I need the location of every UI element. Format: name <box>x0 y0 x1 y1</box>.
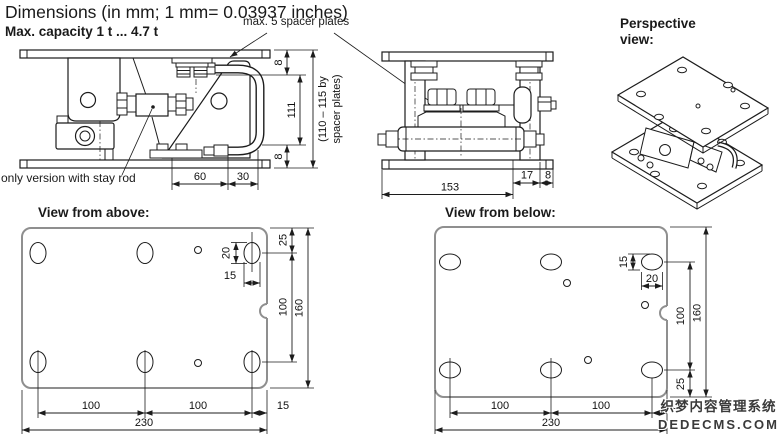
dim-plate-top: 8 <box>273 59 285 65</box>
watermark-site-text: DEDECMS.COM <box>658 416 779 434</box>
technical-drawing: 8 8 111 (110 – 115 by spacer plates) 60 … <box>0 0 784 442</box>
dim-230: 230 <box>135 417 153 429</box>
dim-plate-bottom: 8 <box>273 153 285 159</box>
dim-60: 60 <box>194 171 206 183</box>
front-view-drawing <box>20 50 270 168</box>
spacer-plates-callout: max. 5 spacer plates <box>243 16 349 28</box>
dim-17: 17 <box>521 170 533 182</box>
dim-230: 230 <box>542 417 560 429</box>
height-range-note-1: (110 – 115 by <box>317 76 329 142</box>
top-view-drawing <box>22 228 270 388</box>
view-from-below-label: View from below: <box>445 205 556 220</box>
dim-15-slot: 15 <box>618 256 630 268</box>
dim-30: 30 <box>237 171 249 183</box>
dim-100-vert: 100 <box>278 298 290 316</box>
dim-100-b: 100 <box>189 400 207 412</box>
bottom-view-drawing <box>435 227 670 397</box>
dim-20-slot: 20 <box>646 273 658 285</box>
dim-25-top: 25 <box>278 234 290 246</box>
dim-160: 160 <box>692 304 704 322</box>
height-range-note-2: spacer plates) <box>331 74 343 143</box>
end-view-drawing <box>378 52 556 169</box>
dim-15-slot: 15 <box>224 270 236 282</box>
perspective-view-drawing <box>612 57 768 209</box>
capacity-subtitle: Max. capacity 1 t ... 4.7 t <box>5 24 158 39</box>
dim-100-a: 100 <box>82 400 100 412</box>
watermark: 织梦内容管理系统 DEDECMS.COM <box>658 398 779 434</box>
dim-100-b: 100 <box>592 400 610 412</box>
dim-20-slot: 20 <box>221 247 233 259</box>
leader-dot <box>151 105 155 109</box>
view-from-above-label: View from above: <box>38 205 150 220</box>
dim-25-bottom: 25 <box>675 378 687 390</box>
dim-15-edge: 15 <box>277 400 289 412</box>
dim-100-a: 100 <box>491 400 509 412</box>
perspective-view-label: Perspective view: <box>620 16 715 48</box>
dim-8: 8 <box>545 170 551 182</box>
dim-160: 160 <box>294 299 306 317</box>
stay-rod-note: only version with stay rod <box>1 171 136 185</box>
dim-153: 153 <box>441 182 459 194</box>
watermark-chinese-text: 织梦内容管理系统 <box>658 398 779 416</box>
dim-height-111: 111 <box>286 102 298 119</box>
datasheet-page: { "header": { "title": "Dimensions (in m… <box>0 0 784 442</box>
dim-100-vert: 100 <box>675 307 687 325</box>
